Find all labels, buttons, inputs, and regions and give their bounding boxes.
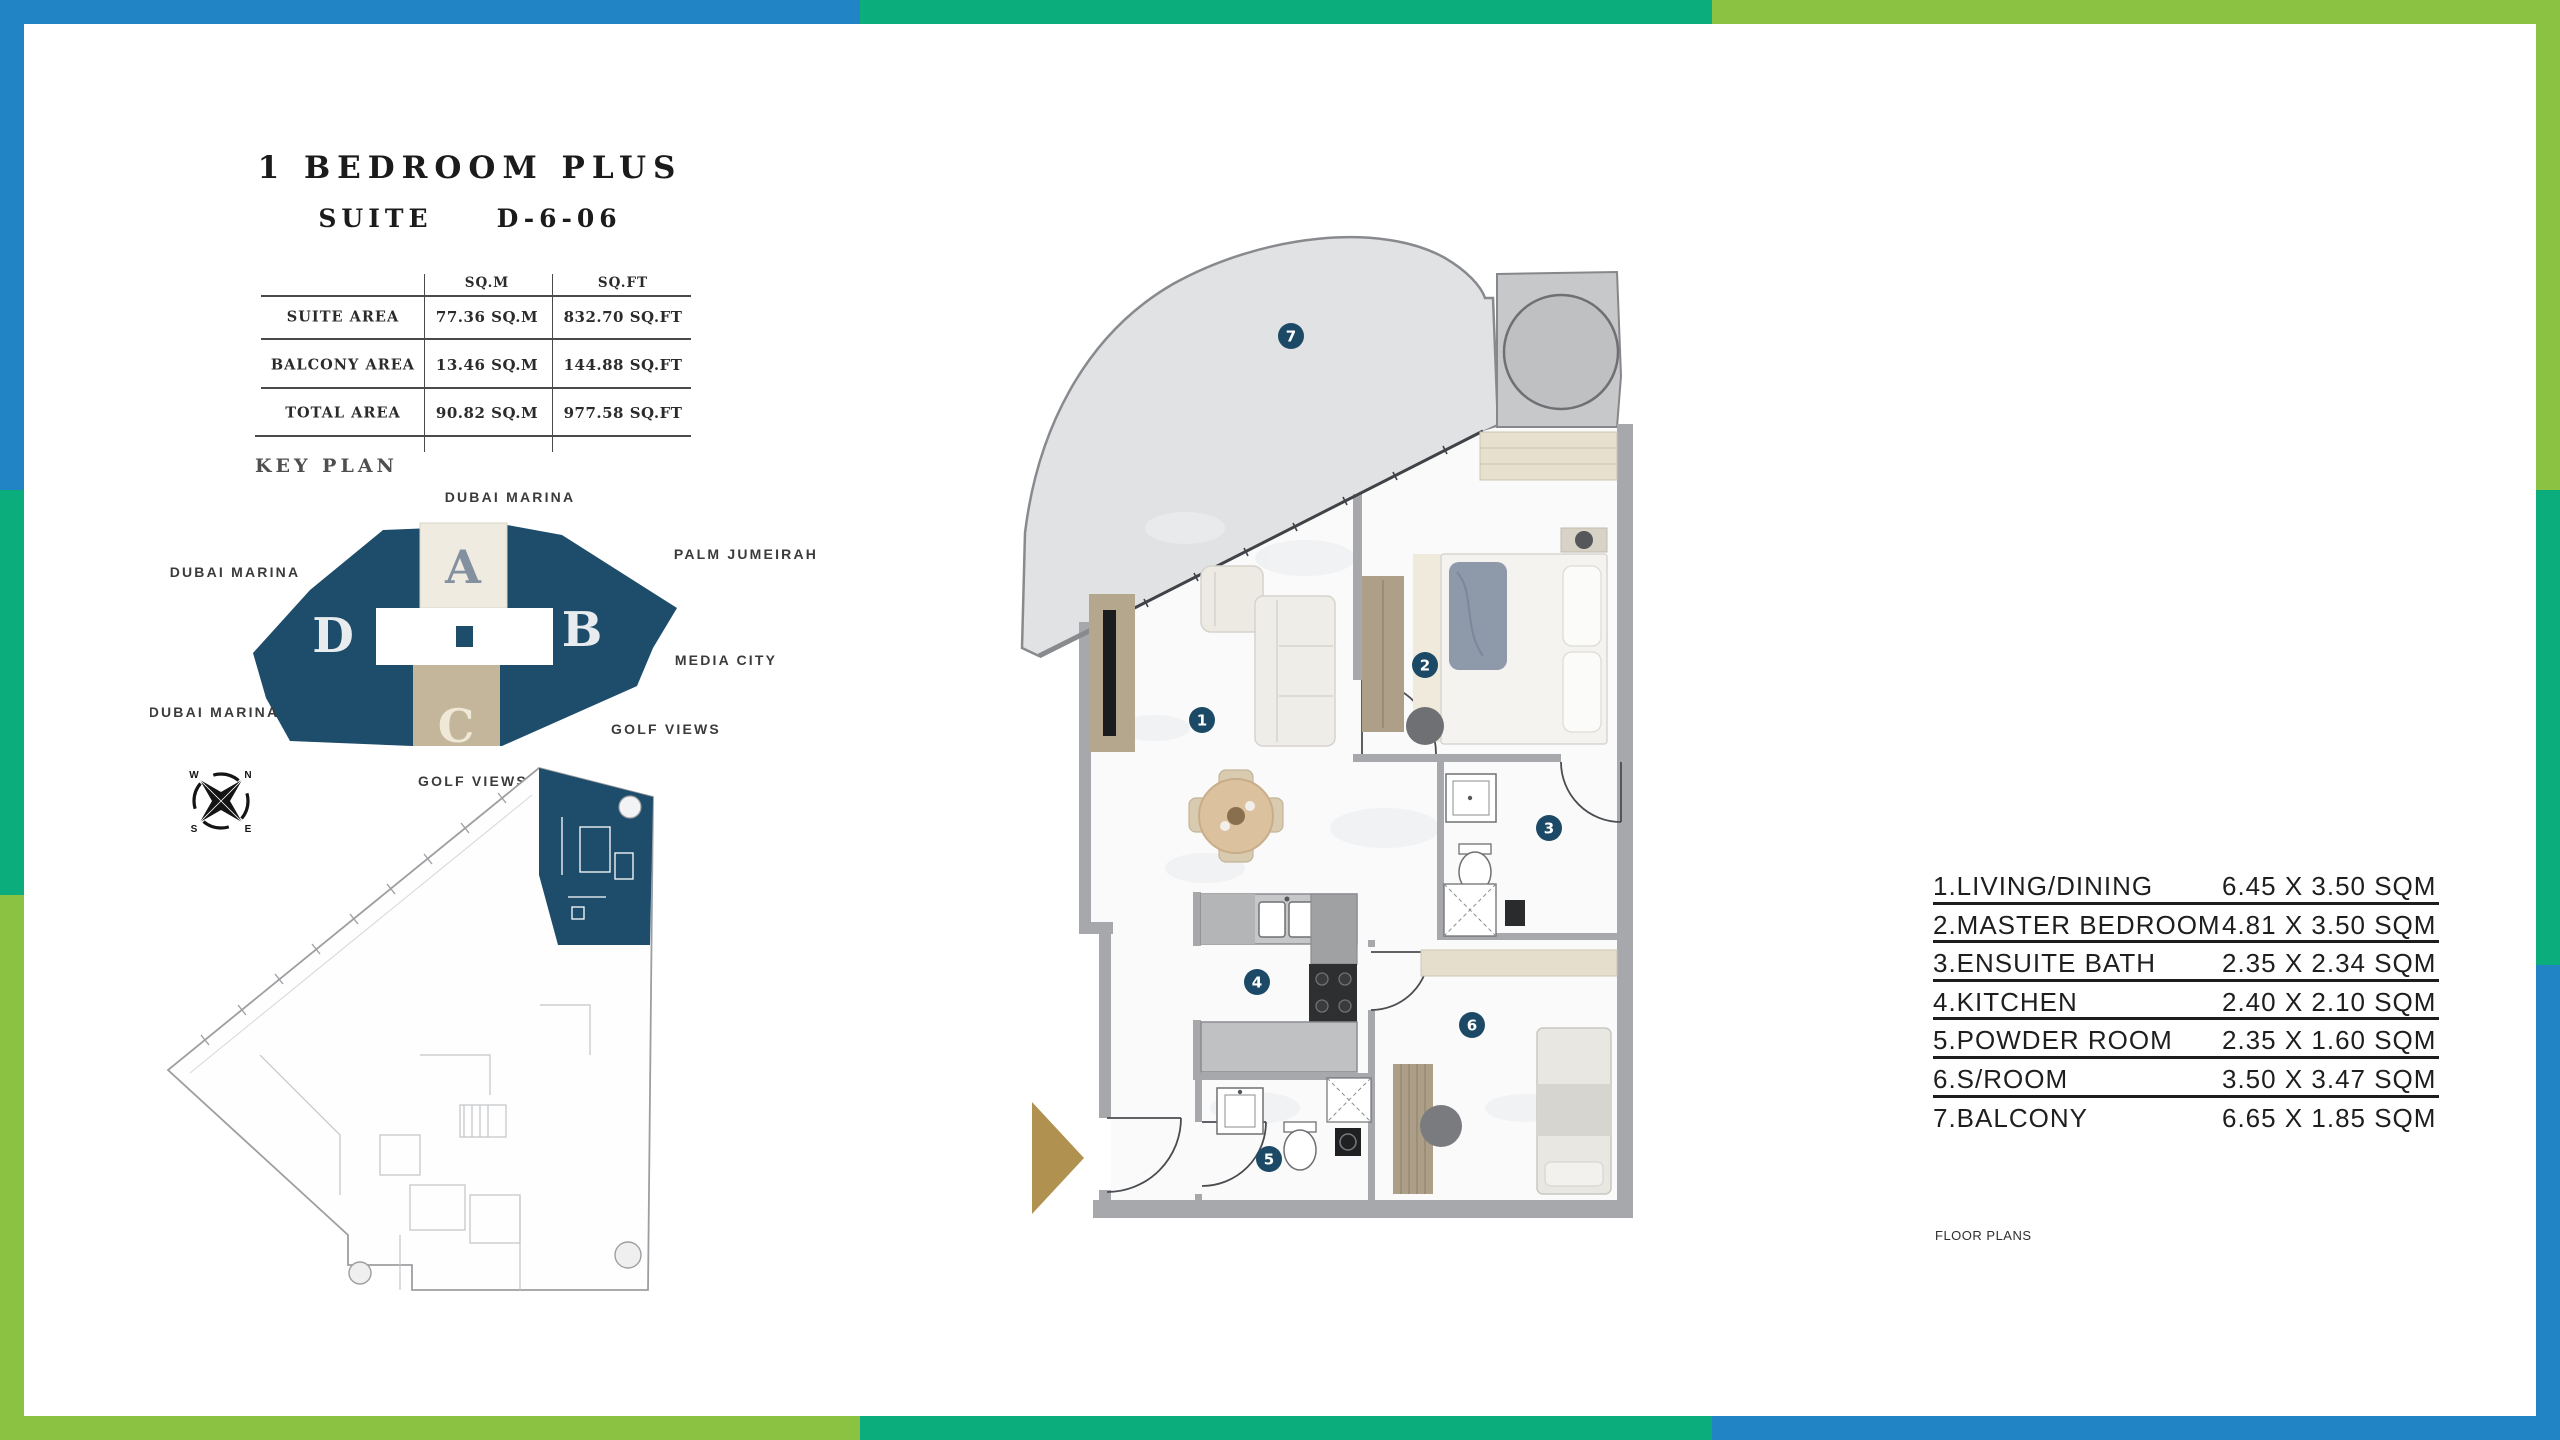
legend-label: 4.KITCHEN <box>1933 987 2078 1018</box>
legend-row-balcony: 7.BALCONY 6.65 X 1.85 SQM <box>1933 1098 2439 1137</box>
label-dubai-marina-top: DUBAI MARINA <box>445 489 576 505</box>
frame-top-lime <box>1712 0 2560 24</box>
label-golf-views-right: GOLF VIEWS <box>611 721 721 737</box>
area-table: SQ.M SQ.FT SUITE AREA 77.36 SQ.M 832.70 … <box>255 268 691 458</box>
legend-dimension: 2.40 X 2.10 SQM <box>2222 987 2436 1018</box>
table-line <box>255 435 691 437</box>
badge-powder: 5 <box>1264 1151 1274 1169</box>
title-block: 1 BEDROOM PLUS SUITE D-6-06 <box>230 150 710 233</box>
frame-right-lime <box>2536 0 2560 490</box>
legend-label: 2.MASTER BEDROOM <box>1933 910 2221 941</box>
table-line <box>261 338 691 340</box>
frame-right-emerald <box>2536 490 2560 965</box>
row-label-balcony-area: BALCONY AREA <box>271 357 415 374</box>
legend-row-living: 1.LIVING/DINING 6.45 X 3.50 SQM <box>1933 866 2439 905</box>
frame-right-blue <box>2536 965 2560 1440</box>
section-letter-b: B <box>562 602 603 658</box>
label-palm-jumeirah: PALM JUMEIRAH <box>674 546 818 562</box>
keyplan-wing-east <box>473 608 553 665</box>
total-area-sqm: 90.82 SQ.M <box>436 404 538 422</box>
legend-dimension: 2.35 X 1.60 SQM <box>2222 1025 2436 1056</box>
section-letter-d: D <box>312 608 354 664</box>
frame-bottom-emerald <box>860 1416 1712 1440</box>
label-media-city: MEDIA CITY <box>675 652 777 668</box>
legend-dimension: 6.65 X 1.85 SQM <box>2222 1103 2436 1134</box>
legend-row-ensuite: 3.ENSUITE BATH 2.35 X 2.34 SQM <box>1933 943 2439 982</box>
legend-label: 6.S/ROOM <box>1933 1064 2068 1095</box>
badge-ensuite: 3 <box>1544 820 1554 838</box>
legend-row-powder: 5.POWDER ROOM 2.35 X 1.60 SQM <box>1933 1020 2439 1059</box>
legend-row-sroom: 6.S/ROOM 3.50 X 3.47 SQM <box>1933 1059 2439 1098</box>
section-letter-c: C <box>438 699 475 753</box>
col-header-sqft: SQ.FT <box>598 275 648 291</box>
legend-row-kitchen: 4.KITCHEN 2.40 X 2.10 SQM <box>1933 982 2439 1021</box>
row-label-suite-area: SUITE AREA <box>287 309 399 326</box>
legend-dimension: 3.50 X 3.47 SQM <box>2222 1064 2436 1095</box>
total-area-sqft: 977.58 SQ.FT <box>564 404 683 422</box>
frame-bottom-lime <box>0 1416 860 1440</box>
badge-sroom: 6 <box>1467 1017 1477 1035</box>
floorplan-brochure-page: 1 BEDROOM PLUS SUITE D-6-06 SQ.M SQ.FT S… <box>0 0 2560 1440</box>
legend-label: 7.BALCONY <box>1933 1103 2088 1134</box>
frame-top-blue <box>0 0 860 24</box>
sroom-furniture <box>1537 1028 1611 1194</box>
legend-label: 5.POWDER ROOM <box>1933 1025 2173 1056</box>
suite-area-sqm: 77.36 SQ.M <box>436 308 538 326</box>
col-header-sqm: SQ.M <box>465 275 509 291</box>
section-letter-a: A <box>444 540 482 594</box>
table-line <box>552 274 553 452</box>
keyplan-core-notch-top <box>456 608 473 626</box>
main-floor-plan: 1 2 3 4 5 6 7 <box>1005 228 1635 1238</box>
frame-top-emerald <box>860 0 1712 24</box>
balcony-area-sqm: 13.46 SQ.M <box>436 356 538 374</box>
suite-label: SUITE <box>318 204 432 233</box>
table-line <box>261 387 691 389</box>
table-line <box>424 274 425 452</box>
floorplate-miniplan <box>160 755 660 1300</box>
keyplan-wing-west <box>376 608 456 665</box>
balcony-area-sqft: 144.88 SQ.FT <box>564 356 683 374</box>
badge-balcony: 7 <box>1286 328 1296 346</box>
legend-row-bedroom: 2.MASTER BEDROOM 4.81 X 3.50 SQM <box>1933 905 2439 944</box>
entrance-arrow <box>1032 1102 1084 1214</box>
frame-left-emerald <box>0 490 24 895</box>
row-label-total-area: TOTAL AREA <box>285 405 401 422</box>
page-title: 1 BEDROOM PLUS <box>230 150 710 186</box>
keyplan-heading: KEY PLAN <box>255 455 398 477</box>
legend-label: 1.LIVING/DINING <box>1933 871 2153 902</box>
badge-bedroom: 2 <box>1420 657 1430 675</box>
core-column <box>1504 295 1618 409</box>
frame-left-blue <box>0 0 24 490</box>
label-dubai-marina-bottom: DUBAI MARINA <box>150 704 279 720</box>
table-line <box>261 295 691 297</box>
keyplan-core-notch-bottom <box>456 647 473 665</box>
label-dubai-marina-left: DUBAI MARINA <box>170 564 301 580</box>
legend-dimension: 4.81 X 3.50 SQM <box>2222 910 2436 941</box>
floor-plans-note: FLOOR PLANS <box>1935 1228 2032 1243</box>
badge-kitchen: 4 <box>1252 974 1262 992</box>
legend-dimension: 6.45 X 3.50 SQM <box>2222 871 2436 902</box>
legend-label: 3.ENSUITE BATH <box>1933 948 2156 979</box>
frame-bottom-blue <box>1712 1416 2560 1440</box>
frame-left-lime <box>0 895 24 1440</box>
suite-area-sqft: 832.70 SQ.FT <box>564 308 683 326</box>
legend-dimension: 2.35 X 2.34 SQM <box>2222 948 2436 979</box>
badge-living: 1 <box>1197 712 1207 730</box>
highlighted-unit <box>539 768 653 945</box>
room-legend: 1.LIVING/DINING 6.45 X 3.50 SQM 2.MASTER… <box>1933 866 2439 1136</box>
suite-number: D-6-06 <box>497 204 622 233</box>
